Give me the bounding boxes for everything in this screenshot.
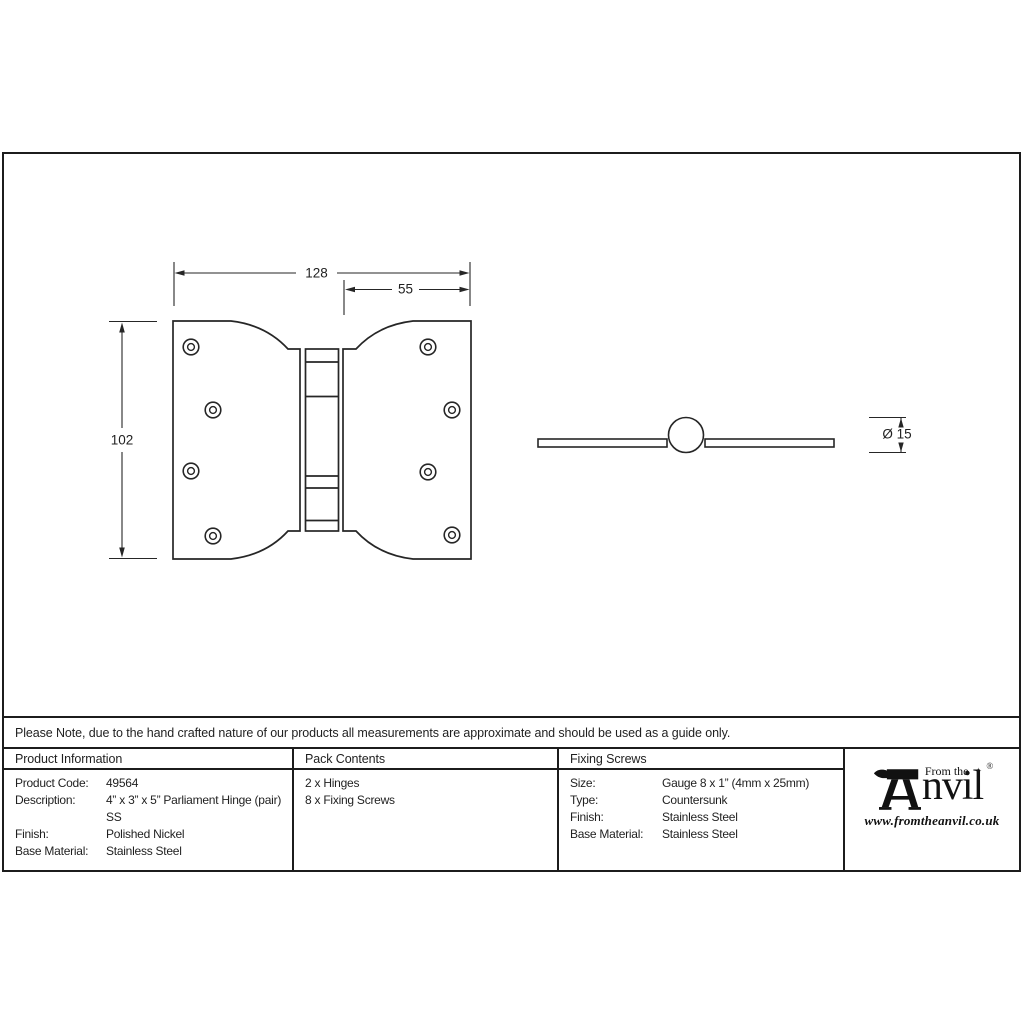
diamond-icon: ✦ [975,766,983,776]
list-item: 2 x Hinges [305,775,557,792]
hinge-front-view [173,321,471,559]
hinge-left-plate [173,321,300,559]
hinge-right-plate [343,321,471,559]
row-value: Countersunk [662,792,843,809]
row-value: 49564 [106,775,292,792]
fixing-screws-body: Size: Gauge 8 x 1” (4mm x 25mm) Type: Co… [559,770,843,843]
side-view-left-leaf [538,439,667,447]
fixing-screws-header: Fixing Screws [559,749,843,770]
row-value: 4” x 3” x 5” Parliament Hinge (pair) [106,792,292,809]
hinge-knuckle [306,349,339,531]
table-row: SS [15,809,292,826]
row-label: Description: [15,792,106,809]
table-row: Type: Countersunk [570,792,843,809]
table-row: Product Code: 49564 [15,775,292,792]
screw-holes [183,339,460,544]
dim-flap-label: 55 [398,282,413,297]
list-item: 8 x Fixing Screws [305,792,557,809]
product-spec-sheet: 128 55 10 [0,0,1024,1024]
row-label: Finish: [15,826,106,843]
row-value: Stainless Steel [662,826,843,843]
pack-contents-body: 2 x Hinges 8 x Fixing Screws [294,770,557,809]
spec-table: Product Information Product Code: 49564 … [4,747,1019,870]
dim-diameter-label: Ø 15 [882,427,911,442]
product-information-header: Product Information [4,749,292,770]
from-the-anvil-logo: From the✦ nvil ® [873,763,991,812]
note-text: Please Note, due to the hand crafted nat… [15,726,730,740]
logo-tagline: From the✦ [925,764,982,779]
table-row: Finish: Polished Nickel [15,826,292,843]
table-row: Finish: Stainless Steel [570,809,843,826]
side-view-knuckle-barrel [669,418,704,453]
row-value: SS [106,809,292,826]
table-row: Base Material: Stainless Steel [570,826,843,843]
row-label: Base Material: [570,826,662,843]
logo-website-url: www.fromtheanvil.co.uk [864,813,999,829]
side-view-right-leaf [705,439,834,447]
dim-height-label: 102 [111,433,134,448]
table-row: Description: 4” x 3” x 5” Parliament Hin… [15,792,292,809]
row-label: Type: [570,792,662,809]
row-label [15,809,106,826]
note-bar: Please Note, due to the hand crafted nat… [4,716,1019,747]
pack-contents-column: Pack Contents 2 x Hinges 8 x Fixing Scre… [294,749,559,870]
row-label: Product Code: [15,775,106,792]
row-label: Size: [570,775,662,792]
row-label: Finish: [570,809,662,826]
dim-width-label: 128 [305,266,328,281]
row-value: Stainless Steel [106,843,292,860]
product-information-column: Product Information Product Code: 49564 … [4,749,294,870]
anvil-logo-icon [873,767,921,812]
hinge-side-view [538,418,834,453]
table-row: Base Material: Stainless Steel [15,843,292,860]
product-information-body: Product Code: 49564 Description: 4” x 3”… [4,770,292,860]
fixing-screws-column: Fixing Screws Size: Gauge 8 x 1” (4mm x … [559,749,845,870]
logo-wordmark: From the✦ nvil ® [922,763,991,809]
row-value: Polished Nickel [106,826,292,843]
registered-mark: ® [986,761,993,771]
brand-logo-cell: From the✦ nvil ® www.fromtheanvil.co.uk [845,749,1019,870]
drawing-sheet-box: 128 55 10 [2,152,1021,872]
technical-drawing-area: 128 55 10 [4,154,1019,716]
row-value: Stainless Steel [662,809,843,826]
pack-contents-header: Pack Contents [294,749,557,770]
row-value: Gauge 8 x 1” (4mm x 25mm) [662,775,843,792]
hinge-technical-drawing: 128 55 10 [4,154,1017,716]
table-row: Size: Gauge 8 x 1” (4mm x 25mm) [570,775,843,792]
row-label: Base Material: [15,843,106,860]
